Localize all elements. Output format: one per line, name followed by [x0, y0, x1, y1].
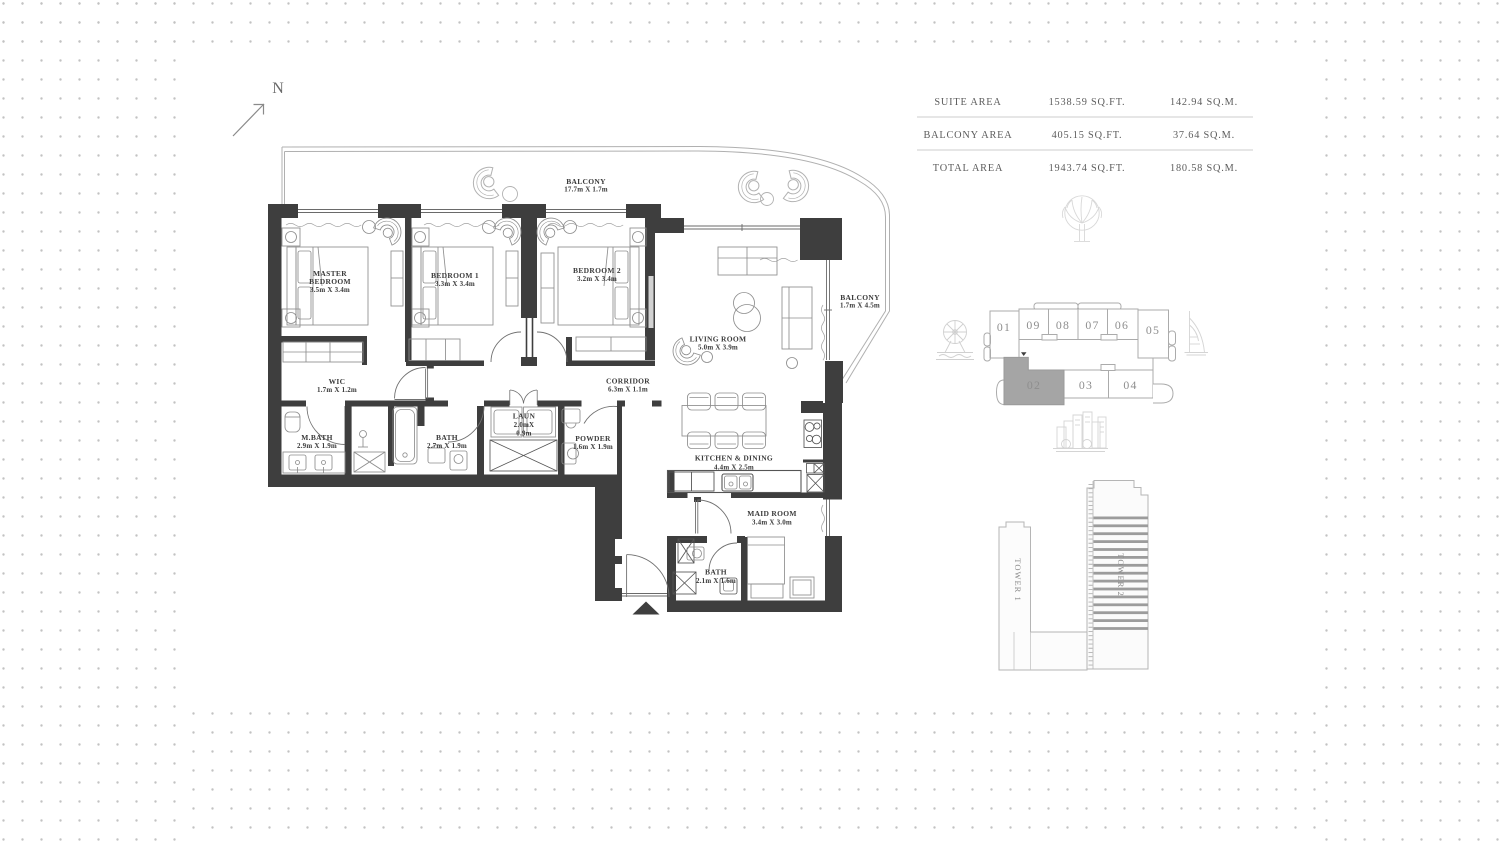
svg-text:TOWER 1: TOWER 1	[1013, 558, 1023, 601]
svg-text:142.94 SQ.M.: 142.94 SQ.M.	[1170, 97, 1238, 108]
svg-text:2.7m X 1.9m: 2.7m X 1.9m	[427, 442, 467, 450]
svg-text:LIVING ROOM: LIVING ROOM	[690, 335, 747, 344]
svg-text:04: 04	[1123, 378, 1137, 392]
svg-text:BEDROOM: BEDROOM	[309, 277, 351, 286]
svg-text:BEDROOM 2: BEDROOM 2	[573, 266, 621, 275]
svg-text:3.4m X 3.0m: 3.4m X 3.0m	[752, 519, 792, 527]
svg-text:BALCONY AREA: BALCONY AREA	[923, 130, 1012, 141]
svg-text:POWDER: POWDER	[575, 434, 611, 443]
svg-text:2.9m X 1.9m: 2.9m X 1.9m	[297, 442, 337, 450]
svg-text:05: 05	[1146, 323, 1160, 337]
svg-text:180.58 SQ.M.: 180.58 SQ.M.	[1170, 163, 1238, 174]
svg-text:09: 09	[1026, 318, 1040, 332]
svg-text:37.64 SQ.M.: 37.64 SQ.M.	[1173, 130, 1235, 141]
svg-text:02: 02	[1027, 378, 1041, 392]
svg-text:1943.74 SQ.FT.: 1943.74 SQ.FT.	[1049, 163, 1126, 174]
svg-text:CORRIDOR: CORRIDOR	[606, 377, 650, 386]
svg-text:2.1m X 1.6m: 2.1m X 1.6m	[696, 577, 736, 585]
svg-text:3.5m X 3.4m: 3.5m X 3.4m	[310, 286, 350, 294]
svg-text:SUITE AREA: SUITE AREA	[934, 97, 1001, 108]
svg-text:TOWER 2: TOWER 2	[1116, 553, 1126, 596]
svg-text:3.2m X 3.4m: 3.2m X 3.4m	[577, 275, 617, 283]
svg-text:08: 08	[1056, 318, 1070, 332]
svg-text:5.0m X 3.9m: 5.0m X 3.9m	[698, 344, 738, 352]
svg-text:6.3m X 1.1m: 6.3m X 1.1m	[608, 386, 648, 394]
svg-text:2.0mX: 2.0mX	[514, 421, 535, 429]
svg-text:TOTAL AREA: TOTAL AREA	[933, 163, 1003, 174]
svg-text:BEDROOM 1: BEDROOM 1	[431, 271, 479, 280]
svg-text:4.4m X 2.5m: 4.4m X 2.5m	[714, 464, 754, 472]
svg-text:1538.59 SQ.FT.: 1538.59 SQ.FT.	[1049, 97, 1126, 108]
svg-text:1.7m X 1.2m: 1.7m X 1.2m	[317, 386, 357, 394]
svg-text:BATH: BATH	[705, 568, 727, 577]
svg-text:3.3m X 3.4m: 3.3m X 3.4m	[435, 280, 475, 288]
svg-text:KITCHEN & DINING: KITCHEN & DINING	[695, 454, 773, 463]
svg-text:03: 03	[1079, 378, 1093, 392]
svg-text:MAID ROOM: MAID ROOM	[747, 509, 797, 518]
svg-text:01: 01	[997, 320, 1011, 334]
svg-text:1.7m X 4.5m: 1.7m X 4.5m	[840, 302, 880, 310]
svg-text:07: 07	[1085, 318, 1099, 332]
svg-text:WIC: WIC	[329, 377, 346, 386]
svg-text:405.15 SQ.FT.: 405.15 SQ.FT.	[1052, 130, 1123, 141]
svg-text:0.9m: 0.9m	[516, 430, 531, 438]
svg-text:17.7m X 1.7m: 17.7m X 1.7m	[564, 186, 608, 194]
svg-text:M.BATH: M.BATH	[301, 433, 332, 442]
svg-text:LAUN: LAUN	[513, 412, 536, 421]
svg-text:06: 06	[1115, 318, 1129, 332]
svg-text:BATH: BATH	[436, 433, 458, 442]
svg-text:N: N	[272, 80, 284, 97]
svg-text:1.6m X 1.9m: 1.6m X 1.9m	[573, 443, 613, 451]
